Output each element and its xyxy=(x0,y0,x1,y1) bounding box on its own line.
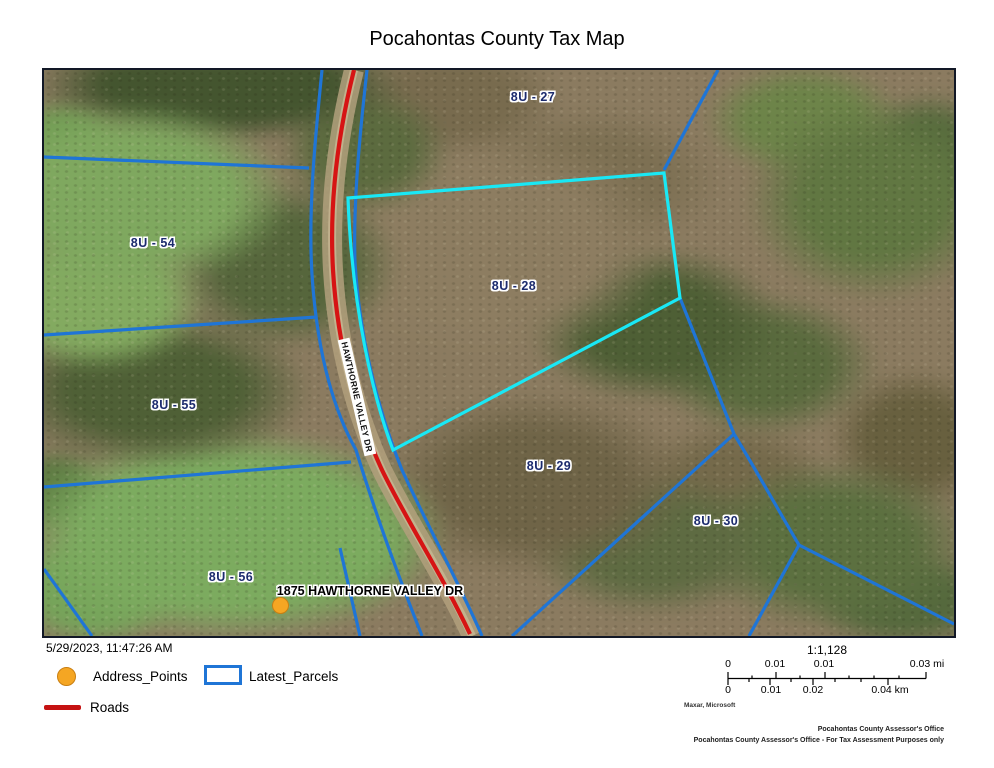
parcel-line-junction-bottom xyxy=(749,545,799,636)
parcel-label-8u30: 8U - 30 xyxy=(694,514,739,528)
legend-parcel-swatch-icon xyxy=(204,665,242,685)
scale-mi-tick-label: 0.01 xyxy=(765,658,785,670)
parcel-label-8u27: 8U - 27 xyxy=(511,90,556,104)
parcel-line-8u27-right xyxy=(664,70,718,170)
scale-km-tick-label: 0.02 xyxy=(803,684,823,696)
parcel-line-8u54-8u55 xyxy=(44,317,317,335)
scale-mi-tick-label: 0.03 mi xyxy=(910,658,944,670)
legend-item-roads: Roads xyxy=(90,700,129,715)
page-title: Pocahontas County Tax Map xyxy=(0,28,994,51)
legend-item-address-points: Address_Points xyxy=(93,669,188,684)
parcel-label-8u56: 8U - 56 xyxy=(209,570,254,584)
parcel-line-8u28-8u30 xyxy=(680,298,734,434)
parcel-line-junction-right xyxy=(799,545,954,624)
highlighted-parcel-outline[interactable] xyxy=(348,173,680,450)
scale-km-tick-label: 0.01 xyxy=(761,684,781,696)
parcel-line-bottom-left xyxy=(44,569,92,636)
assessor-office-credit: Pocahontas County Assessor's Office xyxy=(818,726,944,733)
scale-mi-tick-label: 0 xyxy=(725,658,731,670)
parcel-label-8u55: 8U - 55 xyxy=(152,398,197,412)
parcel-line-8u54-top xyxy=(44,157,309,168)
parcel-label-8u28: 8U - 28 xyxy=(492,279,537,293)
imagery-attribution: Maxar, Microsoft xyxy=(684,702,735,709)
export-timestamp: 5/29/2023, 11:47:26 AM xyxy=(46,641,173,655)
legend-road-swatch-icon xyxy=(44,705,81,710)
scale-mi-tick-label: 0.01 xyxy=(814,658,834,670)
map-canvas[interactable]: 8U - 27 8U - 54 8U - 28 8U - 55 8U - 29 … xyxy=(42,68,956,638)
scale-km-tick-label: 0 xyxy=(725,684,731,696)
parcel-line-8u55-8u56 xyxy=(44,462,351,487)
legend-item-latest-parcels: Latest_Parcels xyxy=(249,669,338,684)
legend-address-point-icon xyxy=(57,667,76,686)
map-vector-layer xyxy=(44,70,954,636)
scale-km-tick-label: 0.04 km xyxy=(871,684,908,696)
parcel-boundaries xyxy=(44,70,954,636)
scale-ratio: 1:1,128 xyxy=(727,643,927,657)
tax-assessment-disclaimer: Pocahontas County Assessor's Office - Fo… xyxy=(694,737,944,744)
parcel-line-8u30-east xyxy=(734,434,799,545)
address-point-marker[interactable] xyxy=(272,597,289,614)
parcel-label-8u29: 8U - 29 xyxy=(527,459,572,473)
address-point-label: 1875 HAWTHORNE VALLEY DR xyxy=(277,584,463,598)
parcel-label-8u54: 8U - 54 xyxy=(131,236,176,250)
